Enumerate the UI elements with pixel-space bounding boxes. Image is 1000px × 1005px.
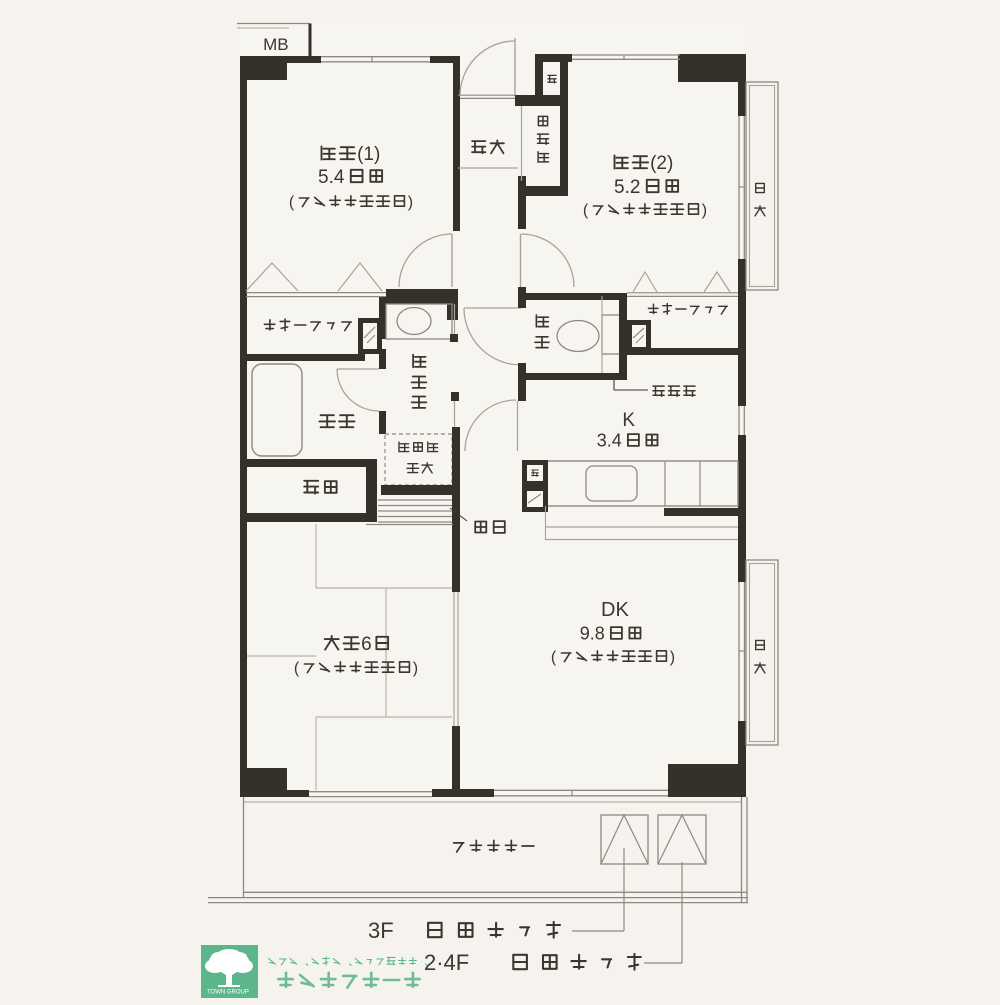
svg-text:3.4: 3.4: [597, 431, 622, 451]
svg-text:MB: MB: [263, 35, 289, 54]
svg-text:(: (: [583, 202, 589, 219]
svg-text:): ): [408, 194, 413, 211]
svg-text:5.2: 5.2: [614, 177, 640, 198]
svg-text:): ): [413, 660, 418, 677]
svg-text:2·4F: 2·4F: [424, 950, 469, 975]
svg-text:DK: DK: [601, 599, 629, 621]
svg-text:5.4: 5.4: [318, 167, 345, 188]
svg-text:(1): (1): [357, 144, 380, 165]
svg-text:(: (: [294, 660, 300, 677]
svg-text:9.8: 9.8: [580, 624, 605, 644]
svg-text:K: K: [622, 410, 635, 431]
svg-text:): ): [702, 202, 707, 219]
svg-text:): ): [670, 649, 675, 666]
svg-text:(2): (2): [650, 153, 673, 174]
svg-text:(: (: [289, 194, 295, 211]
svg-text:(: (: [551, 649, 557, 666]
svg-text:3F: 3F: [368, 918, 394, 943]
svg-text:6: 6: [361, 634, 372, 655]
svg-text:TOWN GROUP: TOWN GROUP: [207, 990, 249, 996]
